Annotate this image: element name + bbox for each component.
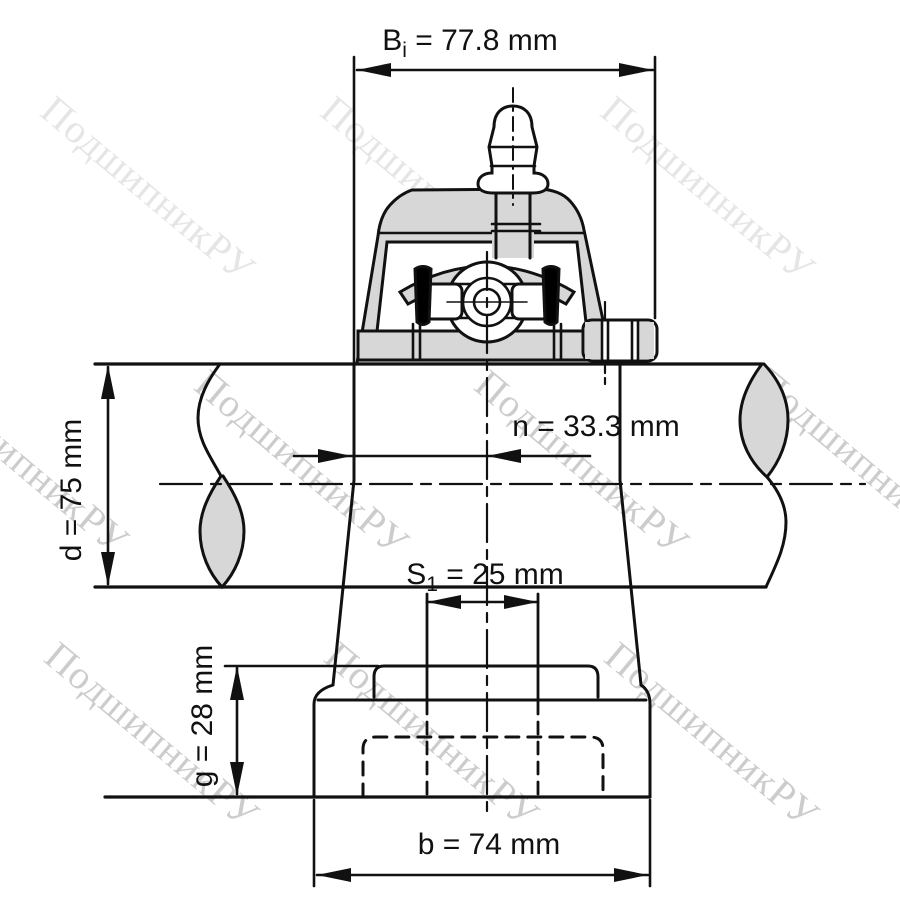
- dim-label-s1: S1 = 25 mm: [406, 558, 564, 597]
- dim-label-n: n = 33.3 mm: [512, 410, 680, 444]
- dimension-g: [225, 666, 378, 796]
- break-s-curve-left: [198, 364, 221, 476]
- dim-label-g: g = 28 mm: [186, 645, 220, 788]
- break-lens-left: [200, 476, 244, 587]
- dim-label-d: d = 75 mm: [55, 419, 89, 562]
- collar-cap-right: [639, 322, 654, 359]
- bi-arrow-right: [619, 63, 653, 77]
- d-arrow-up: [101, 365, 115, 399]
- s1-arrow-left: [427, 595, 461, 609]
- seal-right: [543, 267, 559, 325]
- dimension-s1: [427, 595, 538, 609]
- collar-cap-left: [585, 322, 601, 359]
- break-s-curve-right: [766, 477, 786, 587]
- shaft-break-left: [198, 364, 244, 587]
- n-arrow-right-tip: [318, 449, 352, 463]
- n-arrow-left-tip: [487, 449, 521, 463]
- b-arrow-left: [317, 868, 351, 882]
- dimension-d: [101, 365, 115, 586]
- base-hidden-recess: [363, 737, 603, 797]
- shaft: [95, 364, 788, 587]
- b-arrow-right: [614, 868, 648, 882]
- dim-label-bi: Bi = 77.8 mm: [382, 24, 558, 63]
- base-left-edge: [314, 685, 333, 797]
- base: [314, 594, 650, 797]
- s1-arrow-right: [504, 595, 538, 609]
- seal-left: [415, 267, 431, 325]
- break-lens-right: [740, 364, 788, 477]
- shaft-break-right: [740, 364, 788, 587]
- base-right-edge: [641, 685, 650, 797]
- dimension-n: [294, 449, 590, 463]
- g-arrow-down: [230, 762, 244, 796]
- technical-drawing-page: ПодшипникРУ ПодшипникРУ ПодшипникРУ Подш…: [0, 0, 900, 900]
- dim-label-b: b = 74 mm: [418, 828, 561, 862]
- bi-arrow-left: [357, 63, 391, 77]
- pedestal-left-edge: [333, 364, 354, 685]
- g-arrow-up: [230, 666, 244, 700]
- d-arrow-down: [101, 552, 115, 586]
- bearing-unit-drawing: [0, 0, 900, 900]
